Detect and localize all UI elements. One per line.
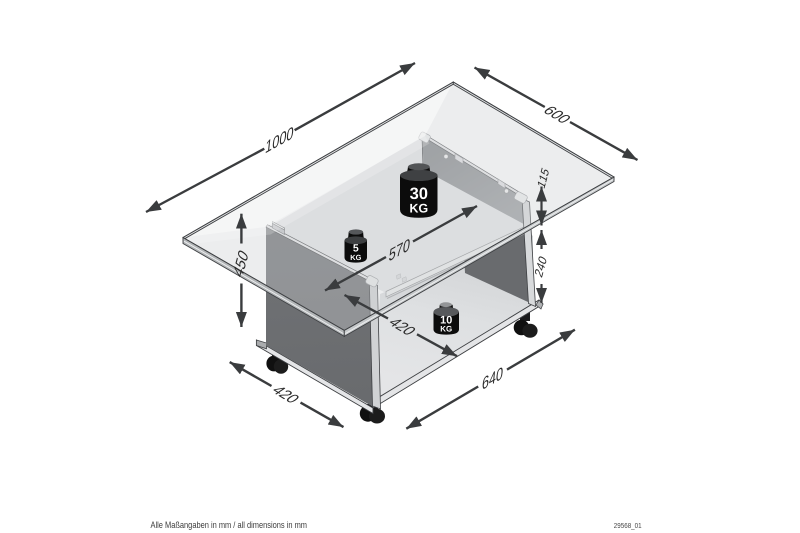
svg-text:Alle Maßangaben in mm / all di: Alle Maßangaben in mm / all dimensions i… [151, 520, 308, 531]
svg-text:29568_01: 29568_01 [614, 521, 642, 530]
